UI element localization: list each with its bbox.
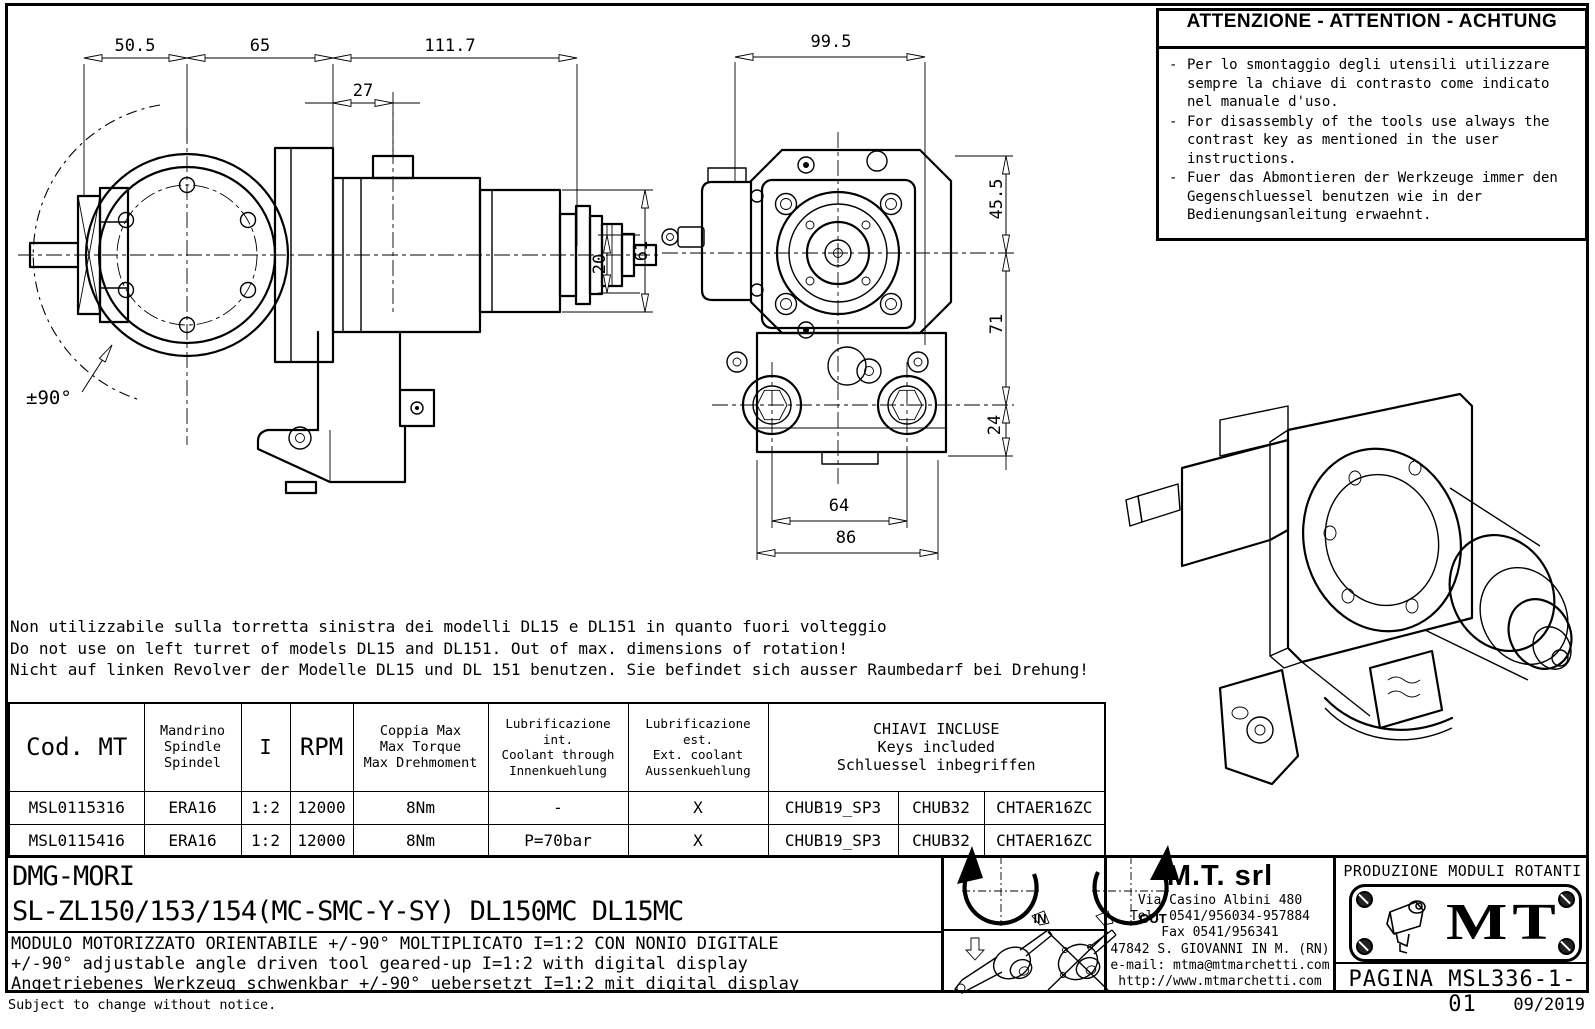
screw-icon — [1356, 891, 1373, 908]
col-header-torque: Coppia Max Max Torque Max Drehmoment — [353, 703, 488, 791]
cell-internal-coolant: - — [488, 791, 628, 824]
col-header-external-coolant: Lubrificazione est. Ext. coolant Aussenk… — [628, 703, 768, 791]
bullet-dash: - — [1169, 113, 1187, 169]
header-line: Aussenkuehlung — [629, 763, 768, 779]
cell-external-coolant: X — [628, 791, 768, 824]
dim-label-20: 20 — [590, 254, 610, 274]
cell-ratio: 1:2 — [241, 824, 290, 857]
header-line: Lubrificazione int. — [489, 716, 628, 747]
header-line: CHIAVI INCLUSE — [769, 720, 1105, 738]
cell-key-3: CHTAER16ZC — [984, 791, 1105, 824]
spec-row-msl0115316: MSL0115316 ERA16 1:2 12000 8Nm - X CHUB1… — [9, 791, 1105, 824]
col-header-keys-included: CHIAVI INCLUSE Keys included Schluessel … — [768, 703, 1105, 791]
warning-item-en: - For disassembly of the tools use alway… — [1169, 113, 1575, 169]
col-header-spindle: Mandrino Spindle Spindel — [144, 703, 241, 791]
side-view-drawing: 50.5 65 111.7 27 61 20 ±90° — [18, 36, 662, 493]
company-address: Via Casino Albini 480 — [1107, 893, 1333, 909]
title-block-description: DMG-MORI SL-ZL150/153/154(MC-SMC-Y-SY) D… — [5, 858, 944, 993]
header-line: Innenkuehlung — [489, 763, 628, 779]
col-header-cod-mt: Cod. MT — [9, 703, 144, 791]
header-line: Schluessel inbegriffen — [769, 756, 1105, 774]
cell-key-1: CHUB19_SP3 — [768, 791, 898, 824]
usage-notes: Non utilizzabile sulla torretta sinistra… — [10, 616, 1580, 681]
dim-label-65: 65 — [250, 36, 270, 56]
spec-row-msl0115416: MSL0115416 ERA16 1:2 12000 8Nm P=70bar X… — [9, 824, 1105, 857]
warning-item-de: - Fuer das Abmontieren der Werkzeuge imm… — [1169, 169, 1575, 225]
warning-title: ATTENZIONE - ATTENTION - ACHTUNG — [1159, 11, 1585, 49]
header-line: Lubrificazione est. — [629, 716, 768, 747]
dim-label-24: 24 — [985, 415, 1005, 435]
warning-box: ATTENZIONE - ATTENTION - ACHTUNG - Per l… — [1156, 8, 1588, 241]
product-description-it: MODULO MOTORIZZATO ORIENTABILE +/-90° MO… — [11, 934, 779, 954]
title-block: DMG-MORI SL-ZL150/153/154(MC-SMC-Y-SY) D… — [5, 855, 1589, 993]
divider — [944, 929, 1104, 931]
bullet-dash: - — [1169, 169, 1187, 225]
cell-key-3: CHTAER16ZC — [984, 824, 1105, 857]
cell-key-1: CHUB19_SP3 — [768, 824, 898, 857]
cell-external-coolant: X — [628, 824, 768, 857]
company-name: M.T. srl — [1107, 860, 1333, 893]
cell-code: MSL0115316 — [9, 791, 144, 824]
logo-monogram: MT — [1446, 893, 1561, 952]
header-line: Ext. coolant — [629, 747, 768, 763]
dim-label-86: 86 — [836, 528, 856, 548]
customer-brand: DMG-MORI — [12, 861, 134, 892]
dim-label-27: 27 — [353, 81, 373, 101]
col-header-internal-coolant: Lubrificazione int. Coolant through Inne… — [488, 703, 628, 791]
isometric-view-drawing — [1126, 394, 1585, 784]
warning-text-de: Fuer das Abmontieren der Werkzeuge immer… — [1187, 169, 1575, 225]
cell-torque: 8Nm — [353, 791, 488, 824]
header-line: Mandrino — [145, 723, 241, 739]
bullet-dash: - — [1169, 56, 1187, 112]
header-line: Max Drehmoment — [354, 755, 488, 771]
company-website: http://www.mtmarchetti.com — [1107, 974, 1333, 990]
header-line: Coolant through — [489, 747, 628, 763]
cell-rpm: 12000 — [290, 824, 353, 857]
spec-header-row: Cod. MT Mandrino Spindle Spindel I RPM C… — [9, 703, 1105, 791]
swivel-angle-label: ±90° — [26, 387, 72, 409]
logo-tool-icon — [1376, 890, 1438, 954]
dim-label-64: 64 — [829, 496, 849, 516]
warning-text-it: Per lo smontaggio degli utensili utilizz… — [1187, 56, 1575, 112]
disclaimer-text: Subject to change without notice. — [8, 997, 276, 1013]
mt-logo: MT — [1349, 884, 1582, 962]
dim-label-71: 71 — [987, 314, 1007, 334]
note-line-en: Do not use on left turret of models DL15… — [10, 638, 1580, 660]
divider — [1336, 962, 1589, 964]
dim-label-99-5: 99.5 — [811, 32, 852, 52]
warning-item-it: - Per lo smontaggio degli utensili utili… — [1169, 56, 1575, 112]
dim-label-61: 61 — [632, 241, 652, 261]
cell-torque: 8Nm — [353, 824, 488, 857]
machine-models: SL-ZL150/153/154(MC-SMC-Y-SY) DL150MC DL… — [12, 896, 683, 927]
header-line: Coppia Max — [354, 723, 488, 739]
header-line: Max Torque — [354, 739, 488, 755]
title-block-pictograms — [944, 858, 1107, 993]
note-line-de: Nicht auf linken Revolver der Modelle DL… — [10, 659, 1580, 681]
company-email: e-mail: mtma@mtmarchetti.com — [1107, 958, 1333, 974]
col-header-ratio: I — [241, 703, 290, 791]
swivel-arc — [33, 105, 160, 400]
note-line-it: Non utilizzabile sulla torretta sinistra… — [10, 616, 1580, 638]
title-block-logo-area: PRODUZIONE MODULI ROTANTI MT — [1336, 858, 1589, 993]
dim-label-111-7: 111.7 — [424, 36, 475, 56]
cell-spindle: ERA16 — [144, 824, 241, 857]
spec-table: Cod. MT Mandrino Spindle Spindel I RPM C… — [8, 702, 1106, 858]
dim-label-45-5: 45.5 — [987, 179, 1007, 220]
screw-icon — [1356, 938, 1373, 955]
cell-spindle: ERA16 — [144, 791, 241, 824]
col-header-rpm: RPM — [290, 703, 353, 791]
company-city: 47842 S. GIOVANNI IN M. (RN) — [1107, 942, 1333, 958]
cell-ratio: 1:2 — [241, 791, 290, 824]
logo-caption: PRODUZIONE MODULI ROTANTI — [1336, 862, 1589, 880]
front-view-drawing: 99.5 45.5 71 24 64 86 — [662, 32, 1014, 560]
drawing-sheet: 50.5 65 111.7 27 61 20 ±90° — [0, 0, 1595, 1029]
cell-internal-coolant: P=70bar — [488, 824, 628, 857]
header-line: Spindle — [145, 739, 241, 755]
cell-key-2: CHUB32 — [898, 791, 984, 824]
cell-key-2: CHUB32 — [898, 824, 984, 857]
dim-label-50-5: 50.5 — [115, 36, 156, 56]
header-line: Spindel — [145, 755, 241, 771]
product-description-en: +/-90° adjustable angle driven tool gear… — [11, 954, 748, 974]
title-block-manufacturer: M.T. srl Via Casino Albini 480 Tel. 0541… — [1107, 858, 1336, 993]
warning-text-en: For disassembly of the tools use always … — [1187, 113, 1575, 169]
revision-date: 09/2019 — [1513, 995, 1585, 1015]
cell-code: MSL0115416 — [9, 824, 144, 857]
cell-rpm: 12000 — [290, 791, 353, 824]
header-line: Keys included — [769, 738, 1105, 756]
divider — [5, 931, 941, 933]
product-description-de: Angetriebenes Werkzeug schwenkbar +/-90°… — [11, 974, 799, 994]
company-fax: Fax 0541/956341 — [1107, 925, 1333, 941]
company-tel: Tel. 0541/956034-957884 — [1107, 909, 1333, 925]
